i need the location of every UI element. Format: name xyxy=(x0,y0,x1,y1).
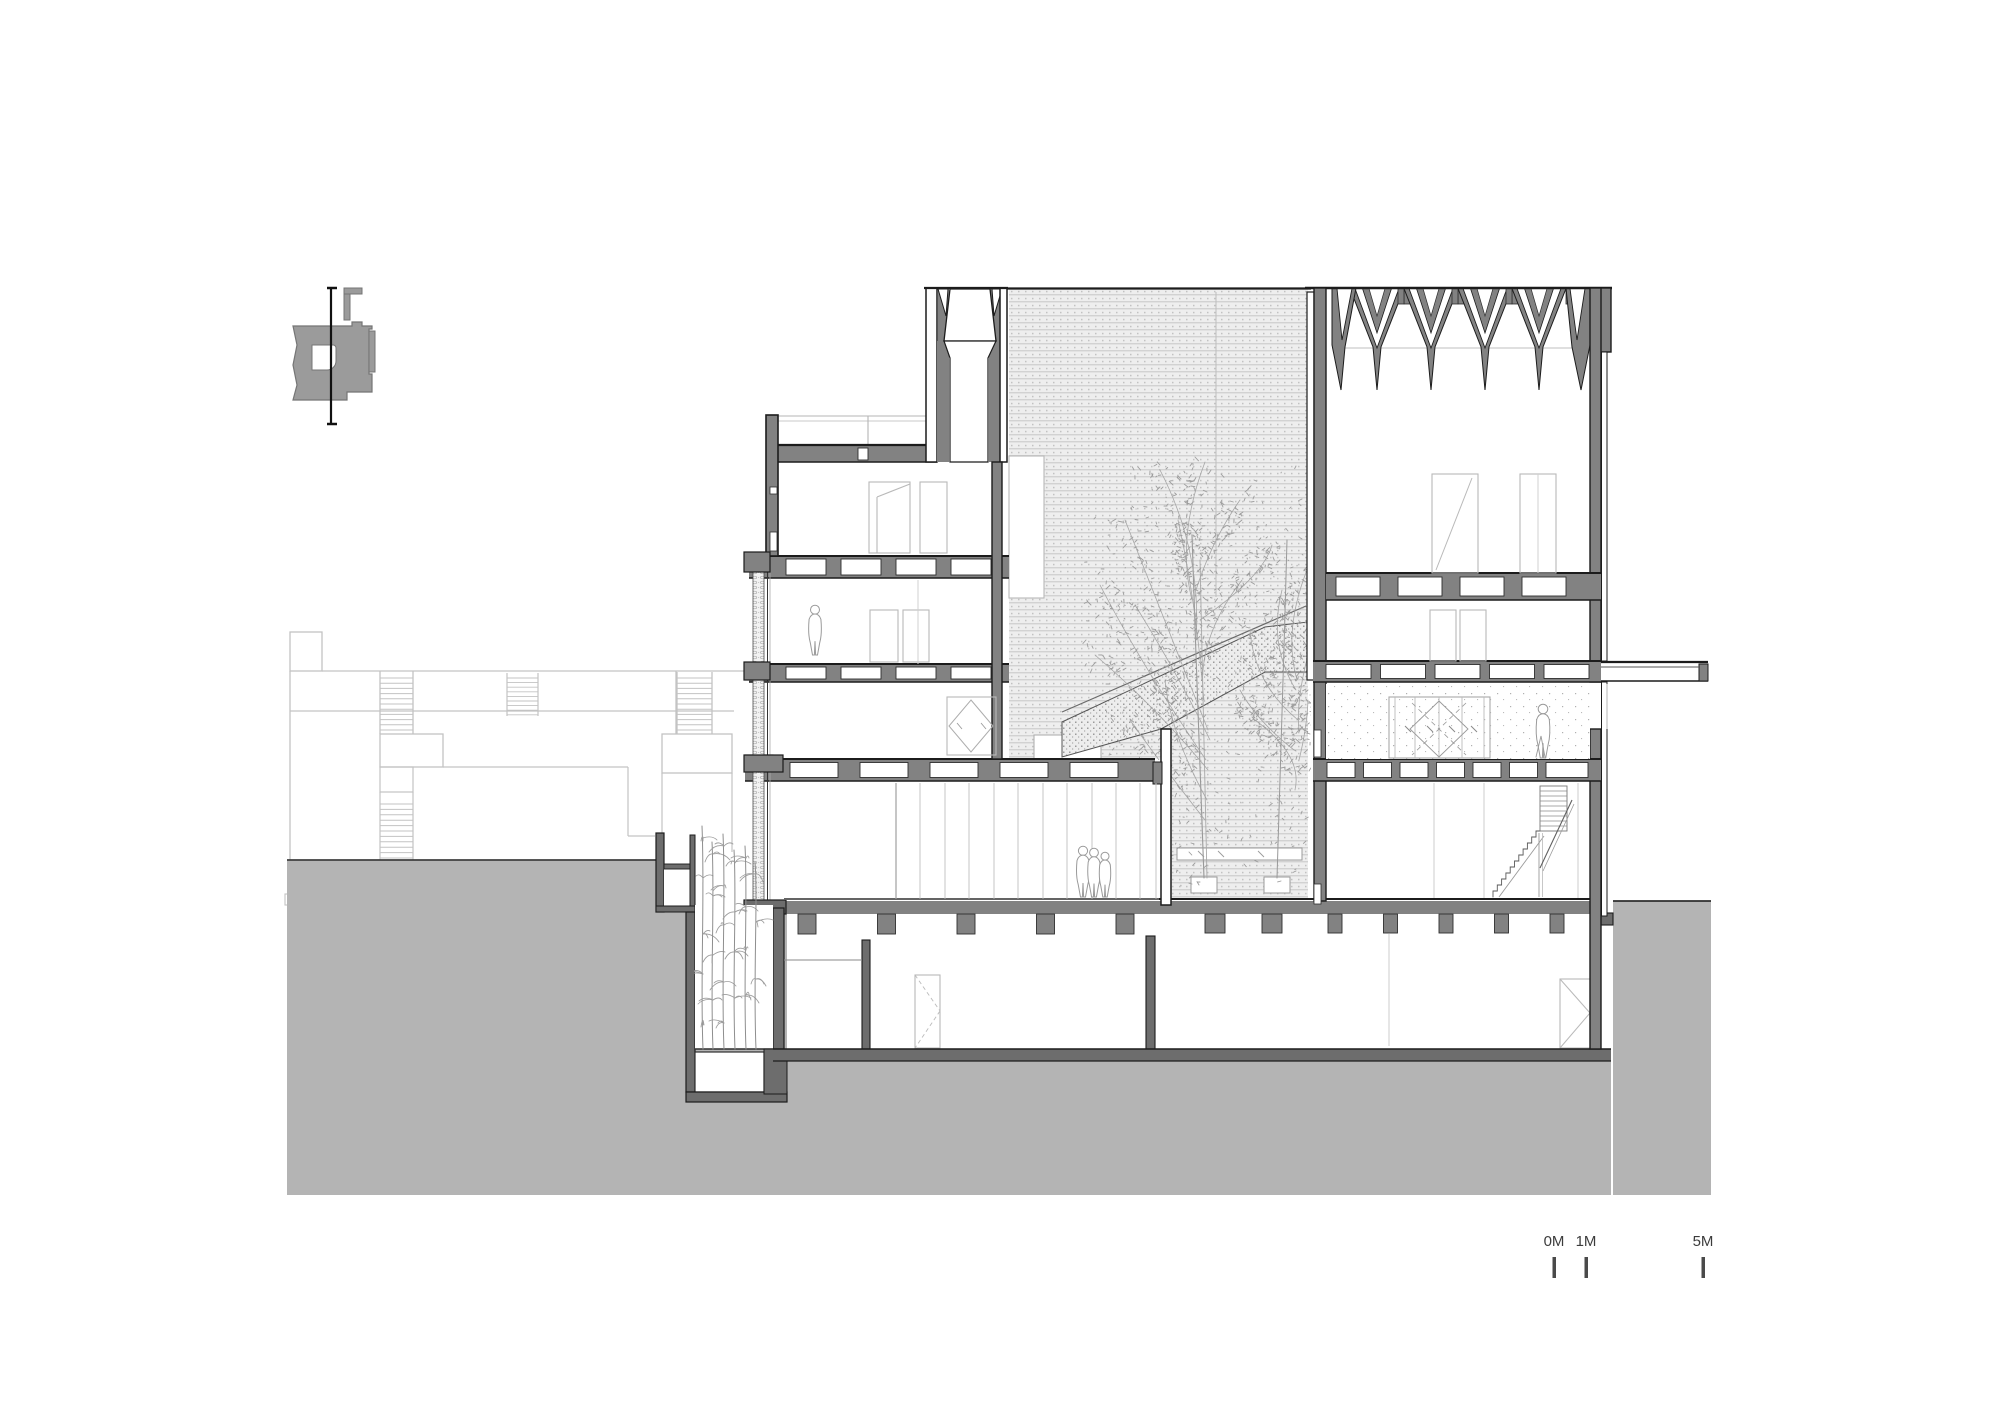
svg-text:0M: 0M xyxy=(1544,1233,1565,1250)
svg-text:1M: 1M xyxy=(1576,1233,1597,1250)
svg-text:5M: 5M xyxy=(1693,1233,1714,1250)
